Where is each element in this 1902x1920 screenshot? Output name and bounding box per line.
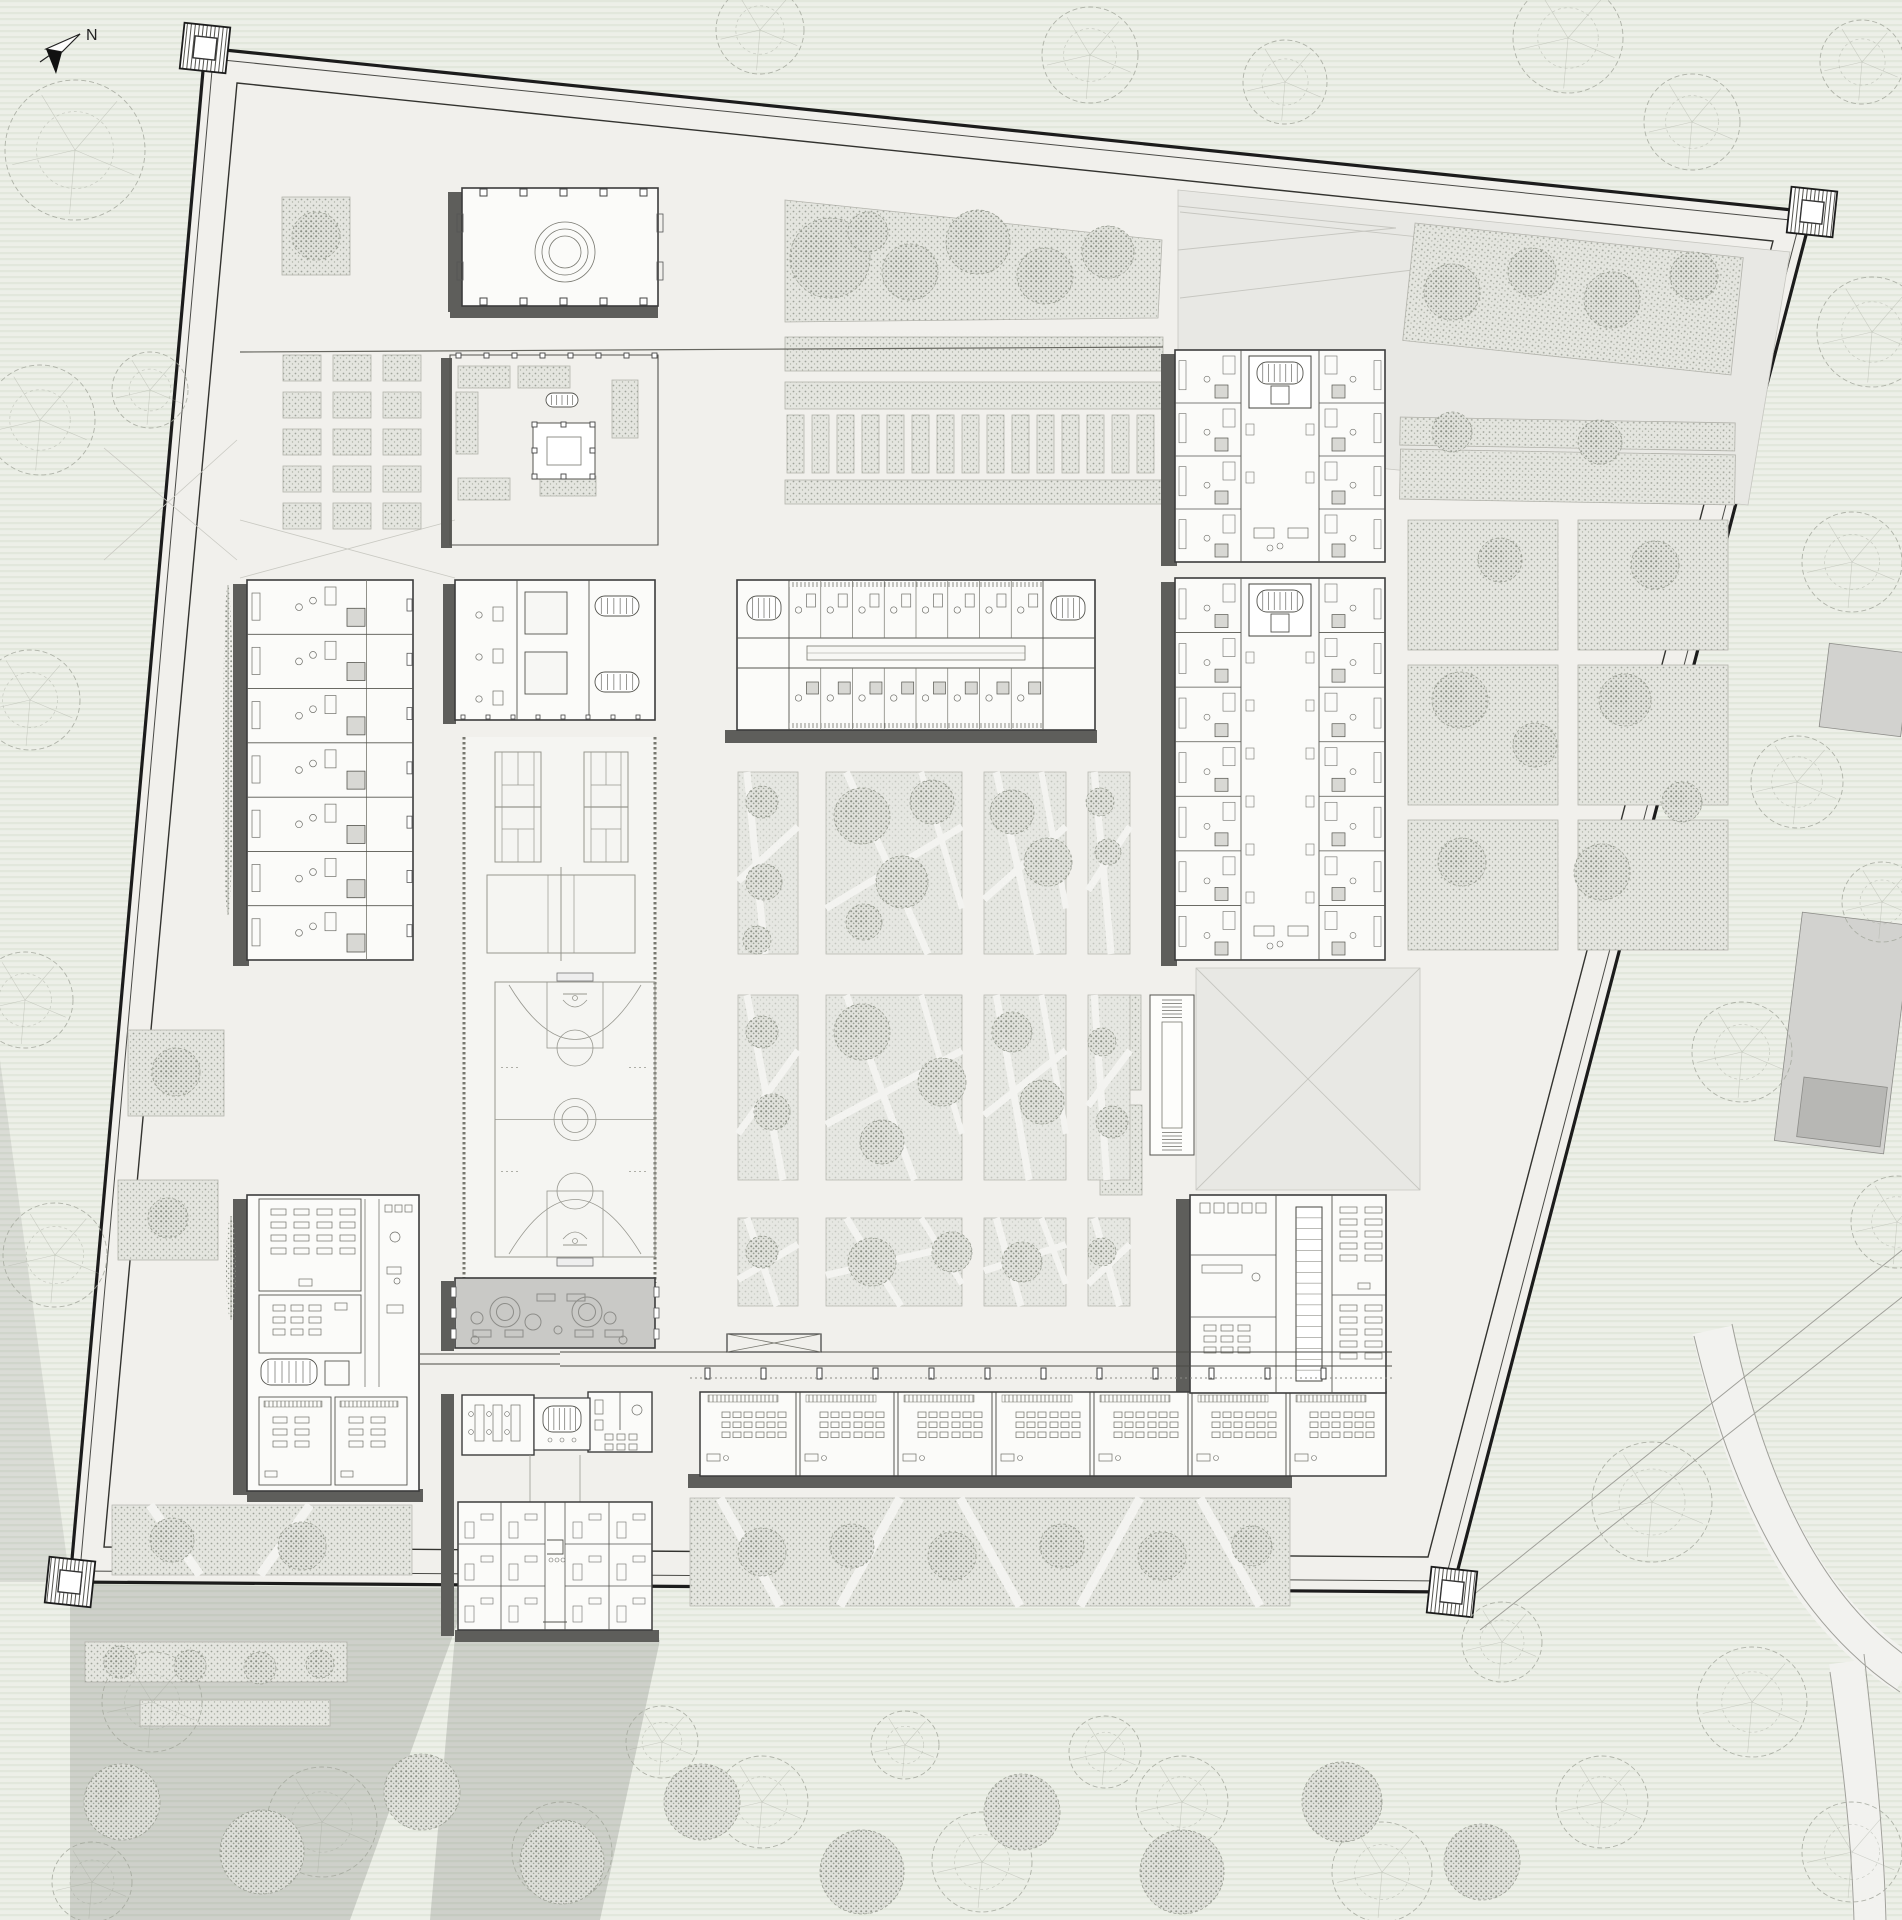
planting-bed (812, 415, 829, 473)
tree-stipple (520, 1820, 604, 1904)
tree-stipple (150, 1518, 194, 1562)
tree-stipple (1631, 541, 1679, 589)
corner-tower (1427, 1567, 1478, 1618)
planting-bed (887, 415, 904, 473)
hedge-row (226, 1216, 236, 1320)
central-dormitory (737, 580, 1095, 730)
planting-bed (1062, 415, 1079, 473)
tree-stipple (848, 212, 888, 252)
ramp-structure (1150, 995, 1194, 1155)
tree-stipple (174, 1650, 206, 1682)
tree-stipple (1599, 674, 1651, 726)
planting-bed (1012, 415, 1029, 473)
north-label: N (86, 27, 98, 44)
walkway-column (705, 1368, 710, 1379)
tree-stipple (664, 1764, 740, 1840)
tree-stipple (1444, 1824, 1520, 1900)
tree-stipple (746, 786, 778, 818)
tree-stipple (746, 1016, 778, 1048)
walkway-column (1041, 1368, 1046, 1379)
tree-stipple (1424, 264, 1480, 320)
southeast-classroom-building (1190, 1195, 1386, 1393)
tree-stipple (384, 1754, 460, 1830)
planting-bed (283, 355, 321, 381)
tree-stipple (278, 1522, 326, 1570)
planting-bed (862, 415, 879, 473)
site-plan-canvas: N (0, 0, 1902, 1920)
corner-tower (1787, 187, 1838, 238)
building-shadow (725, 730, 1097, 743)
planting-bed (333, 392, 371, 418)
building-shadow (441, 1394, 454, 1636)
tree-stipple (1432, 672, 1488, 728)
tree-stipple (1513, 723, 1557, 767)
walkway-column (1265, 1368, 1270, 1379)
tree-stipple (1020, 1080, 1064, 1124)
tree-stipple (738, 1528, 786, 1576)
tree-stipple (244, 1652, 276, 1684)
tree-stipple (848, 1238, 896, 1286)
walkway-column (1321, 1368, 1326, 1379)
neighbor-building (1819, 643, 1902, 736)
planting-bed (1578, 665, 1728, 805)
planting-bed (458, 366, 510, 388)
tree-stipple (834, 1004, 890, 1060)
tree-stipple (1088, 1238, 1116, 1266)
planting-bed (785, 480, 1163, 504)
layer-sports-courts (463, 737, 656, 1283)
southwest-classroom-building (247, 1195, 419, 1491)
tree-stipple (743, 926, 771, 954)
tree-stipple (220, 1810, 304, 1894)
planting-bed (1400, 449, 1736, 505)
tree-stipple (1095, 839, 1121, 865)
walkway-column (817, 1368, 822, 1379)
planting-bed (1408, 520, 1558, 650)
badminton-court (495, 752, 541, 862)
tree-stipple (1478, 538, 1522, 582)
walkway-column (985, 1368, 990, 1379)
walkway-column (1097, 1368, 1102, 1379)
planting-bed (333, 503, 371, 529)
planting-bed (333, 355, 371, 381)
building-shadow (455, 1630, 659, 1642)
tree-stipple (1584, 272, 1640, 328)
tree-stipple (1088, 1028, 1116, 1056)
planting-bed (962, 415, 979, 473)
entry-pavilion (457, 188, 663, 306)
tree-stipple (148, 1198, 188, 1238)
planting-bed (456, 392, 478, 454)
planting-bed (383, 466, 421, 492)
tree-stipple (820, 1830, 904, 1914)
planting-bed (333, 429, 371, 455)
planting-bed (785, 382, 1163, 409)
tree-stipple (928, 1532, 976, 1580)
walkway-column (1209, 1368, 1214, 1379)
planting-bed (283, 466, 321, 492)
planting-bed (333, 466, 371, 492)
tree-stipple (946, 210, 1010, 274)
building-shadow (1176, 1199, 1191, 1399)
tree-stipple (1432, 412, 1472, 452)
walkway-column (761, 1368, 766, 1379)
building-shadow (450, 305, 658, 318)
planting-bed (837, 415, 854, 473)
planting-bed (383, 392, 421, 418)
tree-stipple (860, 1120, 904, 1164)
tree-stipple (1082, 226, 1134, 278)
tree-stipple (754, 1094, 790, 1130)
planting-bed (612, 380, 638, 438)
site-plan-svg: N (0, 0, 1902, 1920)
tree-stipple (1438, 838, 1486, 886)
tree-stipple (1140, 1830, 1224, 1914)
tree-stipple (1662, 782, 1702, 822)
planting-bed (518, 366, 570, 388)
building-shadow (443, 584, 456, 724)
tree-stipple (990, 790, 1034, 834)
planting-bed (1112, 415, 1129, 473)
tree-stipple (1024, 838, 1072, 886)
planting-bed (283, 503, 321, 529)
walkway-column (873, 1368, 878, 1379)
planting-bed (383, 355, 421, 381)
tree-stipple (1578, 420, 1622, 464)
tree-stipple (984, 1774, 1060, 1850)
corner-tower (45, 1557, 96, 1608)
planting-bed (1408, 820, 1558, 950)
walkway-column (1153, 1368, 1158, 1379)
planting-bed (1087, 415, 1104, 473)
walkway-column (929, 1368, 934, 1379)
tree-stipple (84, 1764, 160, 1840)
tree-stipple (882, 244, 938, 300)
planting-bed (785, 337, 1163, 371)
tree-stipple (910, 780, 954, 824)
tree-stipple (152, 1048, 200, 1096)
tree-stipple (1040, 1524, 1084, 1568)
south-pavilion-building (458, 1392, 652, 1630)
building-shadow (448, 192, 462, 312)
tree-stipple (1096, 1106, 1128, 1138)
planting-bed (912, 415, 929, 473)
planting-bed (383, 429, 421, 455)
tree-stipple (1670, 252, 1718, 300)
planting-bed (458, 478, 510, 500)
planting-bed (140, 1700, 330, 1726)
tree-stipple (932, 1232, 972, 1272)
tree-stipple (292, 212, 340, 260)
tree-stipple (918, 1058, 966, 1106)
tree-stipple (1002, 1242, 1042, 1282)
tree-stipple (104, 1646, 136, 1678)
tree-stipple (1508, 248, 1556, 296)
planting-bed (283, 429, 321, 455)
planting-bed (1037, 415, 1054, 473)
planting-bed (987, 415, 1004, 473)
east-dormitory-north (1175, 350, 1385, 562)
tree-stipple (1138, 1532, 1186, 1580)
planting-bed (283, 392, 321, 418)
tree-stipple (306, 1650, 334, 1678)
hedge-row (223, 585, 233, 915)
tree-stipple (1232, 1526, 1272, 1566)
tree-stipple (1086, 788, 1114, 816)
tree-stipple (834, 788, 890, 844)
tree-stipple (1574, 844, 1630, 900)
planting-bed (1137, 415, 1154, 473)
corner-tower (180, 23, 231, 74)
tree-stipple (992, 1012, 1032, 1052)
multipurpose-hall (451, 1278, 659, 1348)
garden-block (1088, 995, 1130, 1180)
sports-strip (463, 737, 656, 1283)
tree-stipple (830, 1524, 874, 1568)
tree-stipple (746, 864, 782, 900)
east-dormitory-south (1175, 578, 1385, 960)
planting-bed (383, 503, 421, 529)
tree-stipple (876, 856, 928, 908)
west-dormitory (247, 580, 413, 960)
tree-stipple (1302, 1762, 1382, 1842)
tree-stipple (846, 904, 882, 940)
south-classroom-wing (700, 1392, 1386, 1476)
neighbor-building (1797, 1077, 1888, 1147)
tree-stipple (1017, 248, 1073, 304)
planting-bed (937, 415, 954, 473)
tree-stipple (746, 1236, 778, 1268)
west-court-block (455, 580, 655, 720)
planting-bed (787, 415, 804, 473)
